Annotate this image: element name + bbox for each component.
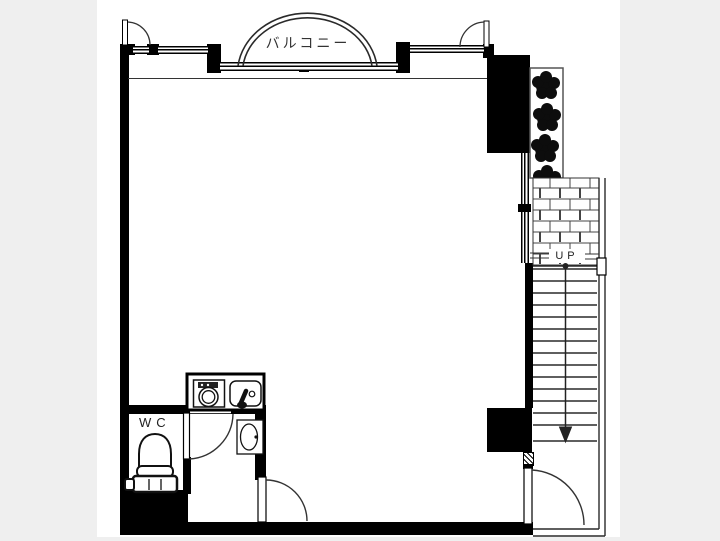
balcony-partition-door-right (460, 21, 489, 47)
plan-linework (0, 0, 720, 541)
stove-icon (194, 380, 225, 407)
balcony-partition-door-left (123, 20, 151, 45)
balcony-label: バルコニー (258, 33, 358, 53)
up-label: UP (549, 249, 585, 263)
bathroom-door (258, 477, 307, 522)
washroom-door (184, 413, 234, 459)
newel-post (597, 258, 606, 275)
kitchen-counter (187, 374, 264, 410)
toilet-icon (125, 434, 177, 492)
wash-basin-icon (237, 420, 263, 454)
wc-label: WC (139, 415, 171, 430)
floor-plan: バルコニー WC UP (0, 0, 720, 541)
kitchen-sink-icon (230, 381, 261, 409)
planter (530, 68, 563, 193)
entry-door (524, 468, 584, 525)
